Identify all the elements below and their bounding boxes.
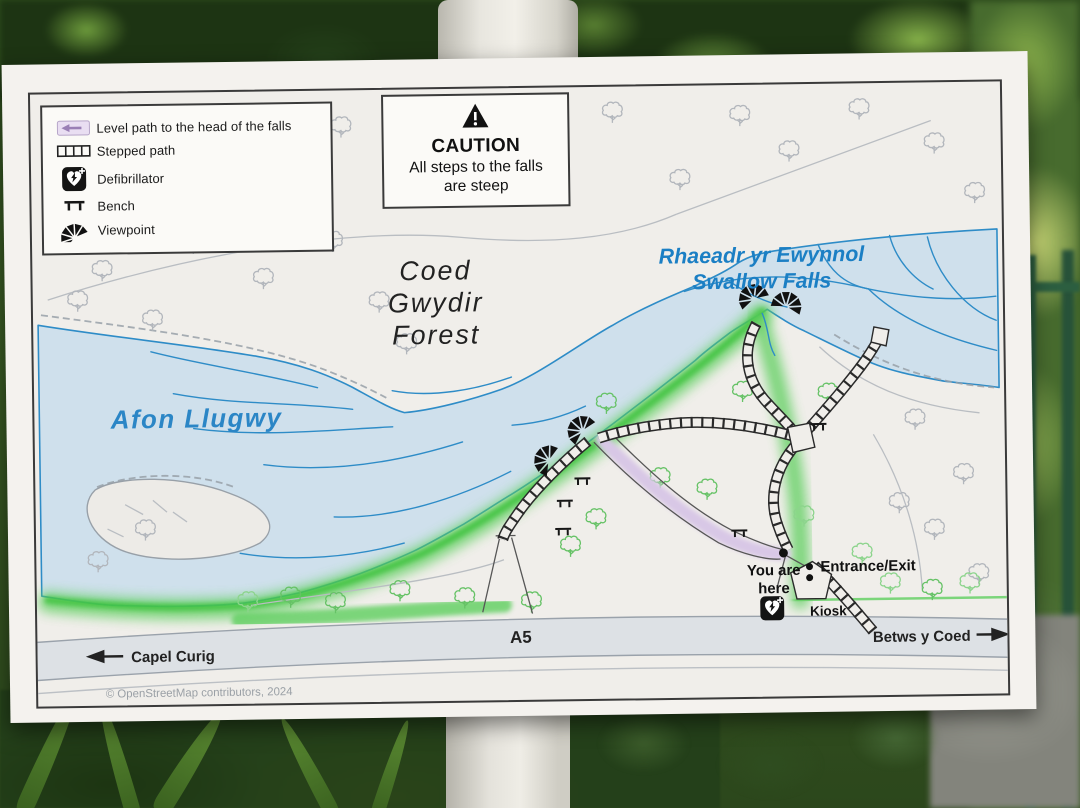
caution-text: All steps to the falls xyxy=(388,156,564,178)
legend-label: Viewpoint xyxy=(98,221,155,237)
legend-label: Stepped path xyxy=(97,142,176,158)
falls-label: Swallow Falls xyxy=(692,268,831,294)
legend-label: Bench xyxy=(97,198,135,214)
level-path xyxy=(594,430,786,562)
forest-label: Coed xyxy=(399,255,472,286)
legend-item-stepped-path: Stepped path xyxy=(51,138,325,162)
railing-post xyxy=(1062,250,1074,808)
bench-icon xyxy=(51,197,97,216)
forest-label: Gwydir xyxy=(388,287,484,318)
legend-item-defibrillator: Defibrillator xyxy=(51,161,325,195)
you-are-here-label: You are xyxy=(747,562,801,580)
stepped-path-icon xyxy=(51,141,97,162)
map-frame: Coed Gwydir Forest Afon Llugwy Rhaeadr y… xyxy=(28,79,1010,708)
entrance-label: Entrance/Exit xyxy=(820,557,916,575)
caution-text: are steep xyxy=(388,176,564,198)
forest-label: Forest xyxy=(392,319,480,350)
legend-box: Level path to the head of the falls Step… xyxy=(40,102,334,256)
kiosk-label: Kiosk xyxy=(810,603,847,619)
leaf-foreground xyxy=(560,700,980,808)
legend-label: Level path to the head of the falls xyxy=(96,118,291,136)
capel-curig-label: Capel Curig xyxy=(131,648,215,666)
path-junction xyxy=(871,327,889,346)
betws-y-coed-label: Betws y Coed xyxy=(873,628,971,646)
grass-blade xyxy=(370,718,414,808)
osm-credit: © OpenStreetMap contributors, 2024 xyxy=(106,686,294,701)
legend-item-viewpoint: Viewpoint xyxy=(52,215,326,243)
defibrillator-icon xyxy=(51,164,97,195)
you-are-here-label: here xyxy=(758,580,790,597)
path-junction xyxy=(788,423,815,452)
level-path-icon xyxy=(50,118,96,139)
photo-scene: Coed Gwydir Forest Afon Llugwy Rhaeadr y… xyxy=(0,0,1080,808)
legend-item-bench: Bench xyxy=(51,194,325,216)
falls-label: Rhaeadr yr Ewynnol xyxy=(659,242,866,269)
viewpoint-icon xyxy=(52,218,98,243)
road-a5-label: A5 xyxy=(510,628,532,647)
warning-icon xyxy=(460,102,490,128)
bench-icon xyxy=(574,478,590,485)
grass-blade xyxy=(275,715,341,808)
bench-icon xyxy=(557,501,573,508)
legend-item-level-path: Level path to the head of the falls xyxy=(50,115,324,139)
river-label: Afon Llugwy xyxy=(110,402,283,434)
legend-label: Defibrillator xyxy=(97,170,164,186)
map-sign-board: Coed Gwydir Forest Afon Llugwy Rhaeadr y… xyxy=(2,51,1037,723)
caution-box: CAUTION All steps to the falls are steep xyxy=(381,92,571,208)
bench-icon xyxy=(555,529,571,536)
caution-title: CAUTION xyxy=(388,134,564,158)
grass-blade xyxy=(151,708,229,808)
defibrillator-icon xyxy=(760,596,784,620)
